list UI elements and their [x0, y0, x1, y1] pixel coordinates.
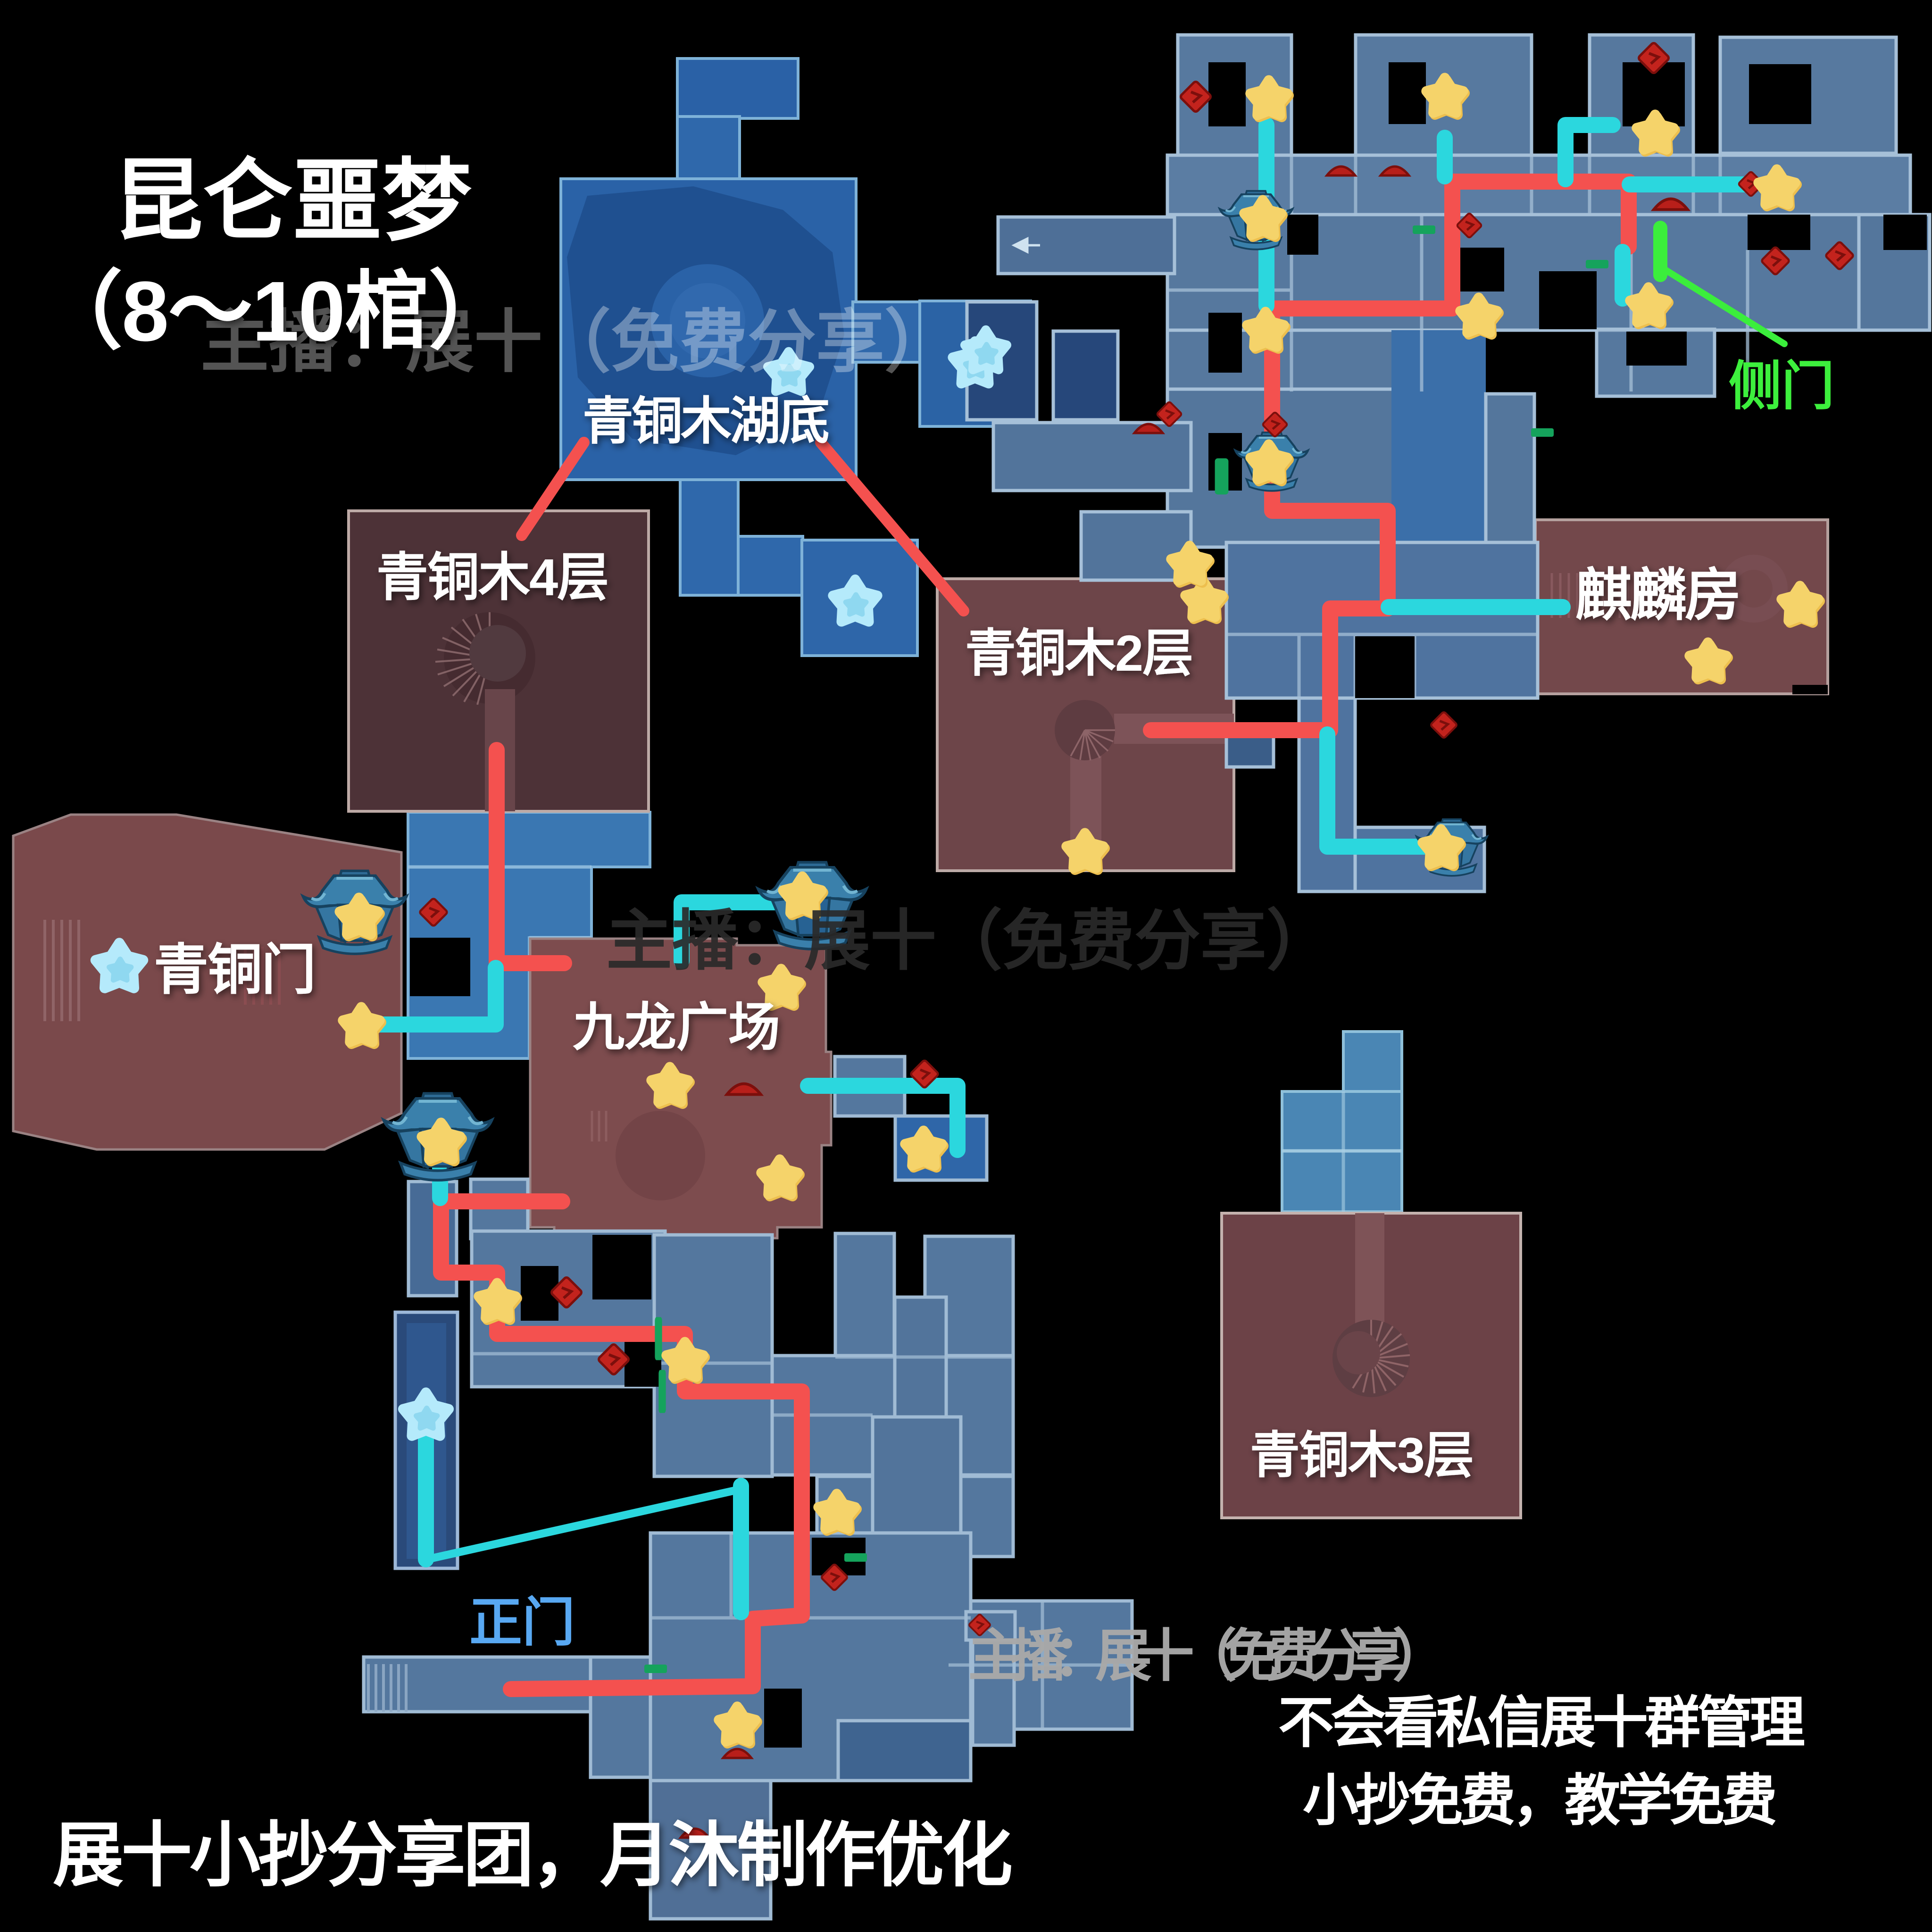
svg-text:小抄免费，教学免费: 小抄免费，教学免费 [1303, 1770, 1776, 1832]
svg-text:展十小抄分享团，月沐制作优化: 展十小抄分享团，月沐制作优化 [53, 1815, 1011, 1895]
svg-text:青铜木2层: 青铜木2层 [965, 625, 1192, 682]
svg-text:麒麟房: 麒麟房 [1575, 564, 1740, 627]
svg-text:主播：展十（免费分享）: 主播：展十（免费分享） [606, 904, 1332, 978]
svg-text:青铜木4层: 青铜木4层 [376, 549, 608, 607]
svg-text:正门: 正门 [469, 1593, 575, 1652]
svg-text:青铜木湖底: 青铜木湖底 [583, 392, 829, 450]
svg-text:不会看私信展十群管理: 不会看私信展十群管理 [1278, 1692, 1804, 1754]
svg-text:青铜门: 青铜门 [154, 939, 315, 1000]
svg-text:九龙广场: 九龙广场 [573, 999, 780, 1057]
svg-text:昆仑噩梦: 昆仑噩梦 [113, 151, 472, 251]
svg-text:主播：展十（免费分享）: 主播：展十（免费分享） [968, 1624, 1435, 1688]
svg-text:（8～10棺）: （8～10棺） [38, 264, 512, 359]
svg-text:青铜木3层: 青铜木3层 [1250, 1428, 1473, 1483]
svg-text:侧门: 侧门 [1729, 357, 1834, 416]
